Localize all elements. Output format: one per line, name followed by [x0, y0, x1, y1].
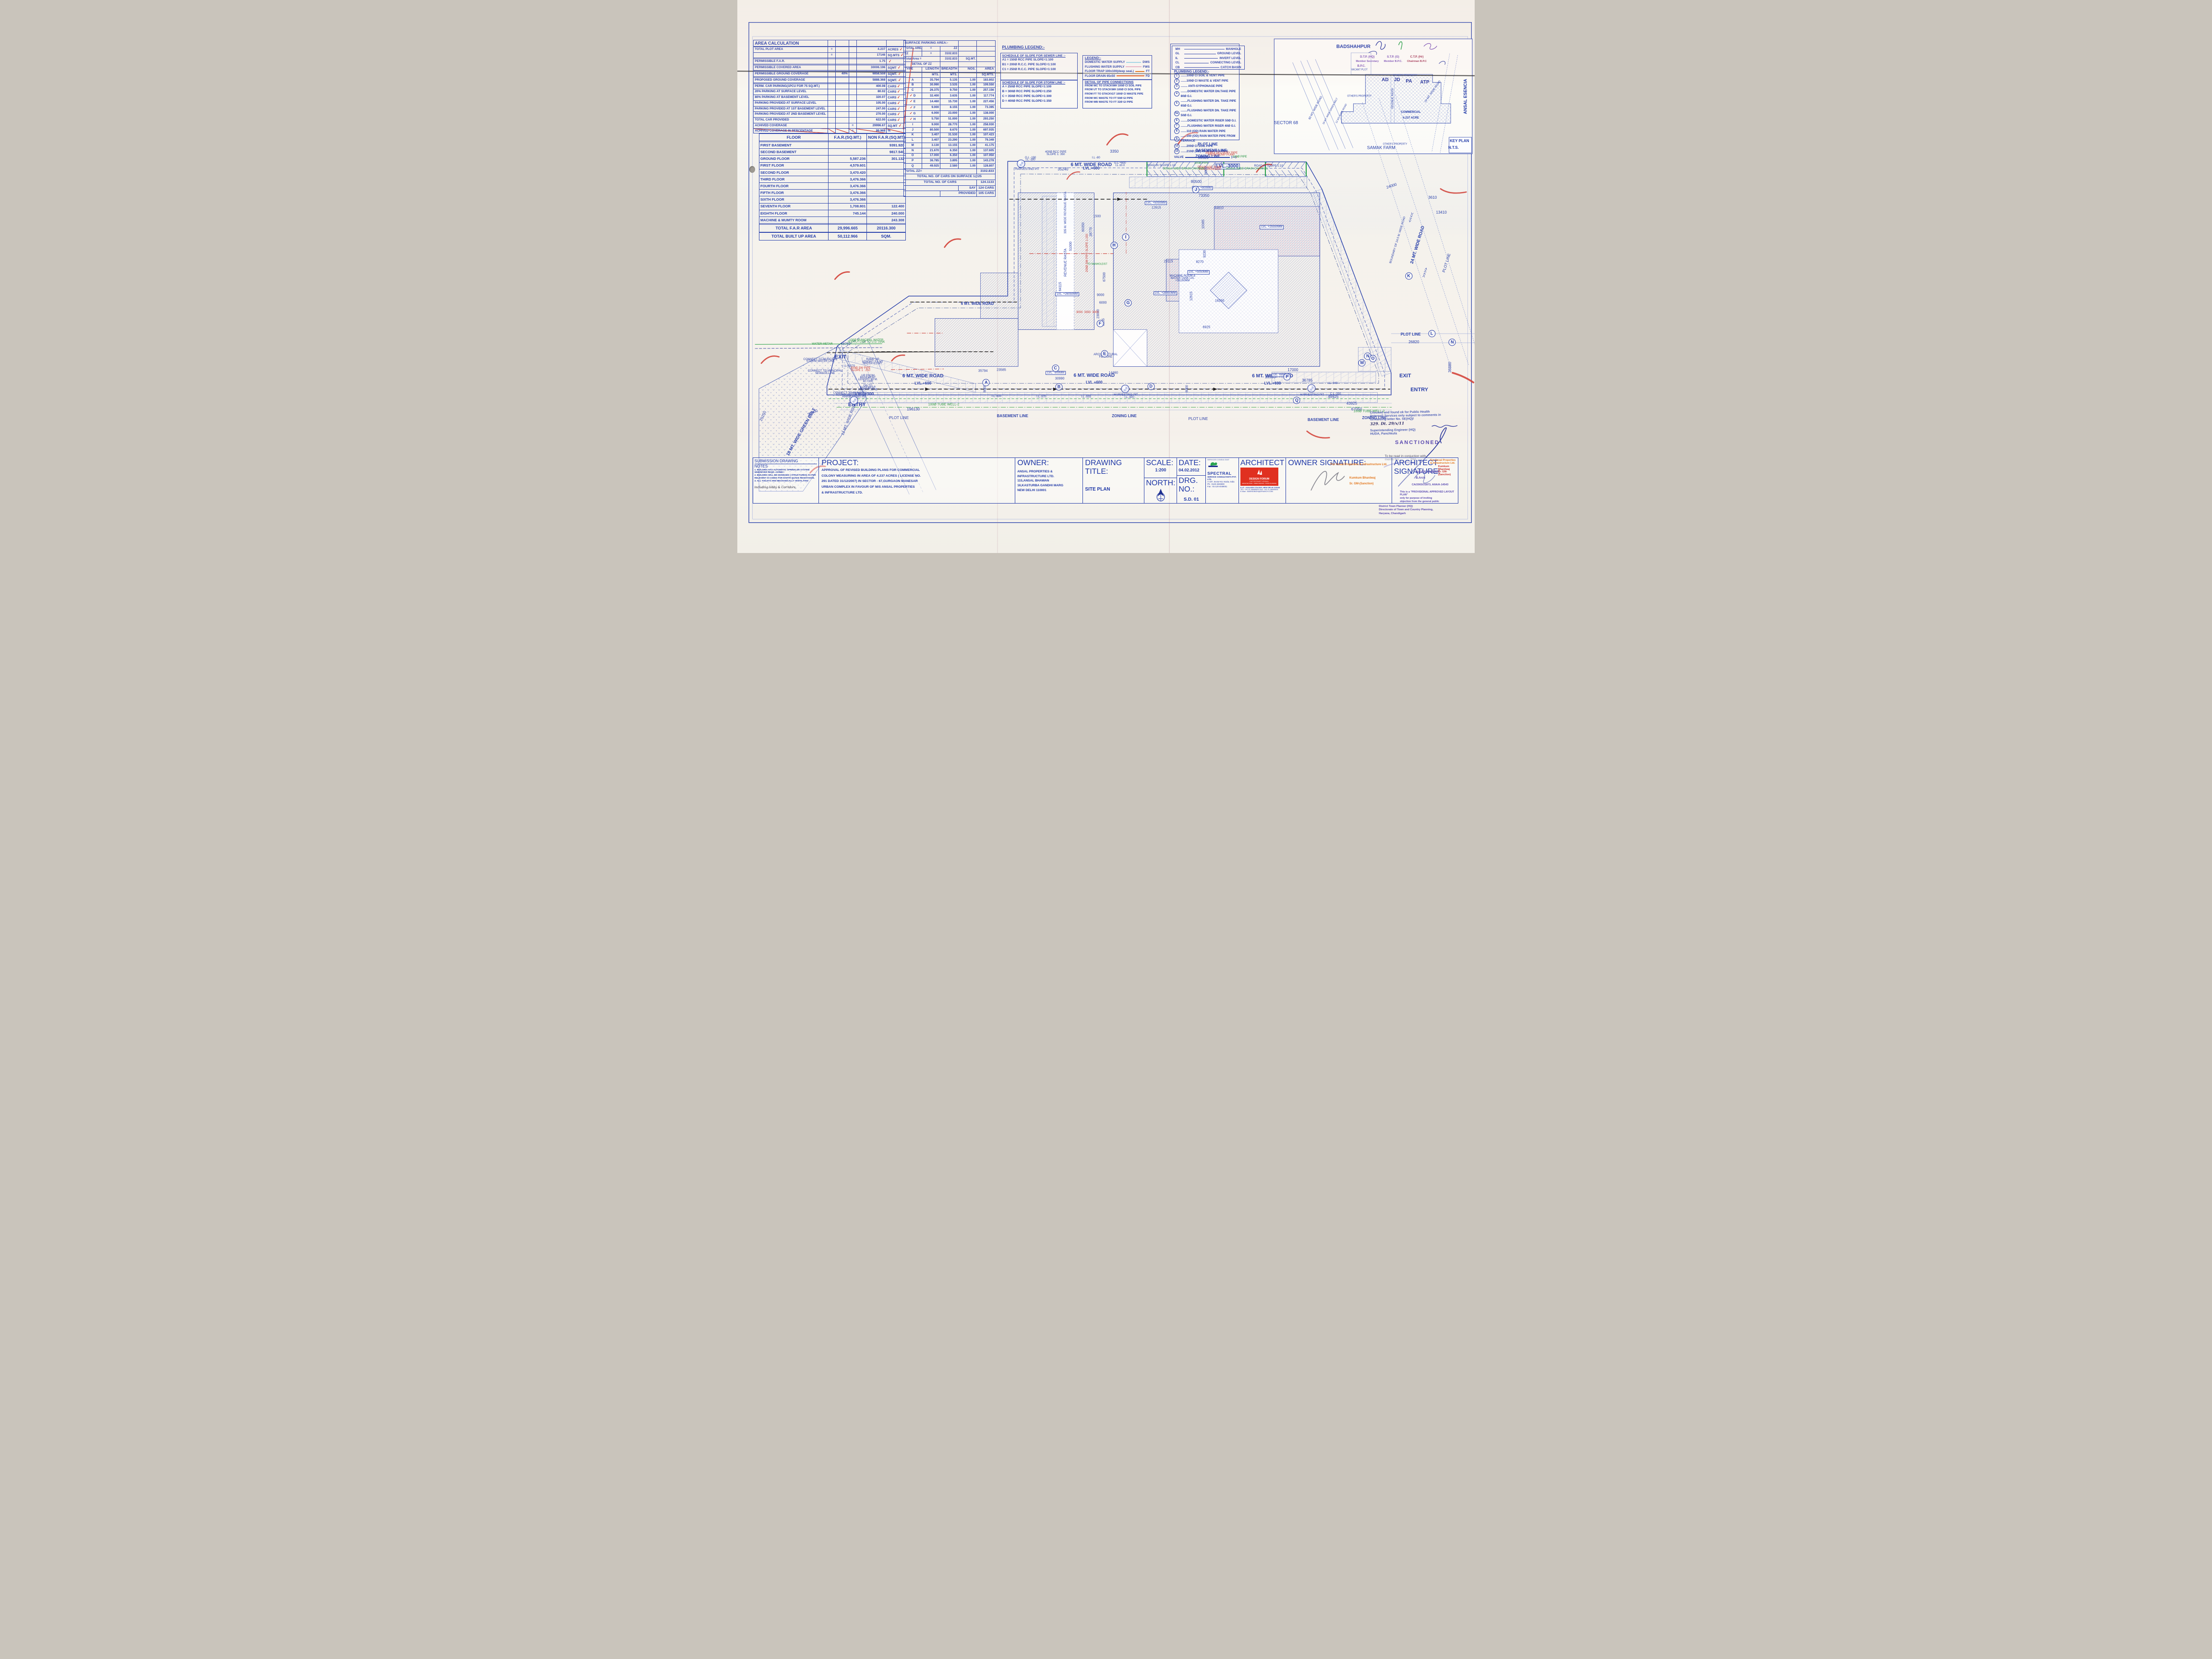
text-line: URBAN COMPLEX IN FAVOUR OF M/S ANSAL PRO…	[821, 484, 940, 490]
text-line: Haryana, Chandigarh	[1379, 512, 1433, 516]
text-line: 2. BUILDING WILL BE DESINGED ( STRUCTURE…	[755, 474, 817, 479]
title-block-project: PROJECT: APPROVAL OF REVISED BUILDING PL…	[819, 458, 1015, 503]
title-block-scale-north: SCALE: 1:200 NORTH:	[1144, 458, 1177, 503]
title-block-drawing-title: DRAWING TITLE: SITE PLAN	[1083, 458, 1144, 503]
scanned-site-plan-sheet: AREA CALCULATIONTOTAL PLOT AREA=4.237ACR…	[737, 0, 1475, 553]
harvesting-pit-icon	[1121, 385, 1130, 393]
title-block-spectral: SERVICES CONSULTANT SPECTRAL SERVICE CON…	[1206, 458, 1239, 503]
title-block-owner-signature: OWNER SIGNATURE: For Ansal Properties & …	[1286, 458, 1392, 503]
text-line: NEW DELHI 110001	[1017, 488, 1081, 493]
text-line: objection from the general public	[1400, 500, 1458, 504]
text-line: This is a "PROVISIONAL APPROVED LAYOUT P…	[1400, 491, 1458, 497]
spectral-logo-icon	[1207, 461, 1219, 469]
design-forum-logo: DESIGN FORUM I N T E R N A T I O N A L A…	[1240, 468, 1278, 486]
title-block: SUBMISSION DRAWING NOTES 1. BUILDING HAS…	[753, 457, 1458, 504]
provisional-stamp: This is a "PROVISIONAL APPROVED LAYOUT P…	[1400, 491, 1458, 504]
text-line: 1. BUILDING HAS AUTOMATIC SPRINKLER SYST…	[755, 469, 817, 474]
title-block-date-drg: DATE: 04.02.2012 DRG. NO.: S.D. 01	[1177, 458, 1206, 503]
text-line: Directorate of Town and Country Planning…	[1379, 508, 1433, 512]
sanctioned-stamp: SANCTIONED	[1395, 440, 1440, 445]
north-arrow-icon	[1154, 488, 1167, 502]
harvesting-pit-icon	[1017, 160, 1025, 168]
title-block-notes: SUBMISSION DRAWING NOTES 1. BUILDING HAS…	[753, 458, 819, 503]
text-line: INFRASTRUCTURE LTD.	[1017, 474, 1081, 479]
text-line: 291 DATED 31/12/2007) IN SECTOR - 67,GUR…	[821, 479, 940, 484]
text-line: APPROVAL OF REVISED BUILDING PLANS FOR C…	[821, 468, 940, 473]
text-line: 16,KASTURBA GANDHI MARG	[1017, 483, 1081, 488]
district-town-planner-stamp: District Town Planner (HQ)Directorate of…	[1379, 505, 1433, 516]
text-line: ANSAL PROPERTIES &	[1017, 469, 1081, 474]
text-line: 115,ANSAL BHAWAN	[1017, 479, 1081, 483]
public-health-stamp: Checked and found ok for Public Health(I…	[1370, 409, 1463, 435]
title-block-owner: OWNER: ANSAL PROPERTIES &INFRASTRUCTURE …	[1015, 458, 1083, 503]
text-line: COLONY MEASURING IN AREA OF 4.237 ACRES …	[821, 473, 940, 479]
text-line: 3. ALL TOILETS ARE MECHANICALLY VENTILAT…	[755, 480, 817, 482]
text-line: only for purpose of inviting	[1400, 497, 1458, 500]
title-block-architect: ARCHITECT DESIGN FORUM I N T E R N A T I…	[1239, 458, 1286, 503]
text-line: District Town Planner (HQ)	[1379, 505, 1433, 509]
design-forum-glyph-icon	[1255, 469, 1263, 475]
harvesting-pit-icon	[1308, 385, 1316, 393]
text-line: & INFRASTRUCTURE LTD.	[821, 490, 940, 496]
handwritten-note: including lobby & Corridors,	[755, 486, 796, 489]
drawing-title: SITE PLAN	[1085, 487, 1142, 492]
title-block-architect-signature: ARCHITECT SIGNATURE: NAVIN KUMAR B.Arch …	[1392, 458, 1458, 503]
harvesting-pit-icon	[850, 397, 858, 405]
